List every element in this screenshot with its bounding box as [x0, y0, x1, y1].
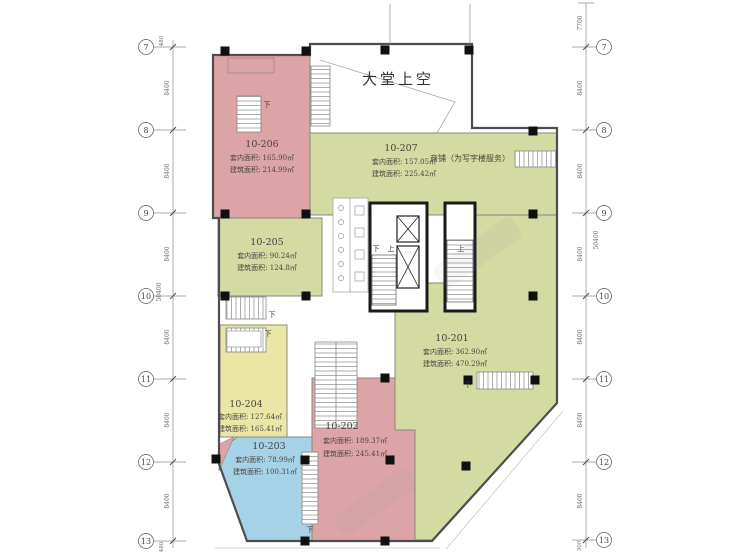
svg-text:套内面积: 78.99㎡: 套内面积: 78.99㎡ — [235, 455, 295, 464]
grid-row-label: 12 — [599, 458, 609, 467]
dim-bay: 8400 — [577, 329, 584, 344]
stair-icon — [237, 96, 261, 132]
svg-text:建筑面积: 165.41㎡: 建筑面积: 165.41㎡ — [218, 424, 282, 433]
floor-plan-svg: 7 8 9 10 11 12 13 8400 8400 8400 8400 84… — [0, 0, 750, 560]
closet — [227, 331, 261, 347]
shop-note: 商铺（为写字楼服务） — [430, 153, 510, 163]
dim-total-left: 50400 — [156, 282, 163, 301]
svg-text:10-206: 10-206 — [245, 139, 278, 150]
svg-text:10-202: 10-202 — [325, 421, 358, 432]
svg-text:建筑面积: 470.29㎡: 建筑面积: 470.29㎡ — [423, 359, 487, 368]
svg-text:10-201: 10-201 — [435, 333, 468, 344]
grid-row-label: 7 — [143, 43, 148, 52]
grid-row-label: 10 — [141, 292, 151, 301]
dim-bay: 8400 — [164, 412, 171, 427]
dim-bay: 8400 — [577, 493, 584, 508]
grid-row-label: 10 — [599, 292, 609, 301]
stair-icon — [226, 297, 266, 319]
dim-bay: 8400 — [164, 329, 171, 344]
svg-text:建筑面积: 245.41㎡: 建筑面积: 245.41㎡ — [323, 449, 387, 458]
dim-bay: 8400 — [164, 163, 171, 178]
dim-bay: 8400 — [164, 493, 171, 508]
stair-down-label: 下 — [373, 245, 380, 253]
svg-text:套内面积: 165.90㎡: 套内面积: 165.90㎡ — [230, 153, 294, 162]
dim-edge: 480 — [159, 35, 165, 46]
dim-bay: 8400 — [577, 163, 584, 178]
lobby-label: 大堂上空 — [362, 70, 434, 88]
grid-row-label: 12 — [141, 458, 151, 467]
dim-edge: 300 — [577, 540, 583, 551]
dim-bay: 8400 — [164, 80, 171, 95]
grid-left-labels: 7 8 9 10 11 12 13 8400 8400 8400 8400 84… — [141, 35, 171, 552]
svg-text:建筑面积: 100.31㎡: 建筑面积: 100.31㎡ — [233, 467, 297, 476]
lobby-stair-icon — [311, 66, 330, 126]
stair-down-label: 下 — [265, 330, 272, 338]
grid-row-label: 7 — [601, 43, 606, 52]
stair-down-label: 下 — [269, 311, 276, 319]
stair-down-label: 下 — [465, 381, 472, 389]
grid-row-label: 9 — [143, 209, 148, 218]
grid-row-label: 8 — [143, 126, 148, 135]
svg-text:10-205: 10-205 — [250, 237, 283, 248]
svg-text:10-203: 10-203 — [252, 441, 285, 452]
grid-row-label: 13 — [599, 536, 609, 545]
svg-text:套内面积: 157.05㎡: 套内面积: 157.05㎡ — [372, 157, 436, 166]
dim-bay: 8400 — [577, 246, 584, 261]
core-stair-icon — [372, 255, 396, 305]
grid-row-label: 9 — [601, 209, 606, 218]
stair-icon — [515, 151, 557, 167]
restroom-block — [333, 198, 368, 292]
floor-plan-page: 7 8 9 10 11 12 13 8400 8400 8400 8400 84… — [0, 0, 750, 560]
dim-bay: 8400 — [577, 80, 584, 95]
dim-top-right: 7700 — [577, 15, 584, 30]
svg-text:10-207: 10-207 — [384, 143, 417, 154]
dim-edge: 480 — [159, 541, 165, 552]
svg-text:建筑面积: 225.42㎡: 建筑面积: 225.42㎡ — [372, 169, 436, 178]
grid-row-label: 11 — [141, 375, 151, 384]
dim-bay: 8400 — [577, 412, 584, 427]
unit-10-206-region — [213, 55, 310, 218]
stair-down-label: 下 — [264, 101, 271, 109]
svg-text:套内面积: 90.24㎡: 套内面积: 90.24㎡ — [237, 251, 297, 260]
grid-row-label: 11 — [599, 375, 609, 384]
svg-text:建筑面积: 214.99㎡: 建筑面积: 214.99㎡ — [230, 165, 294, 174]
grid-right-labels: 7 8 9 10 11 12 13 8400 8400 8400 8400 84… — [577, 15, 609, 551]
dim-bay: 8400 — [164, 246, 171, 261]
svg-text:10-204: 10-204 — [229, 399, 262, 410]
svg-text:套内面积: 189.37㎡: 套内面积: 189.37㎡ — [323, 436, 387, 445]
svg-text:套内面积: 362.90㎡: 套内面积: 362.90㎡ — [423, 347, 487, 356]
stair-up-label: 上 — [388, 244, 395, 253]
dim-total-right: 50400 — [593, 230, 600, 249]
grid-row-label: 13 — [141, 537, 151, 546]
stair-icon — [477, 372, 533, 389]
svg-text:套内面积: 127.64㎡: 套内面积: 127.64㎡ — [218, 412, 282, 421]
grid-row-label: 8 — [601, 126, 606, 135]
svg-text:建筑面积: 124.8㎡: 建筑面积: 124.8㎡ — [237, 263, 297, 272]
unit-10-203-region — [219, 437, 312, 541]
stair-down-label: 下 — [307, 526, 314, 534]
